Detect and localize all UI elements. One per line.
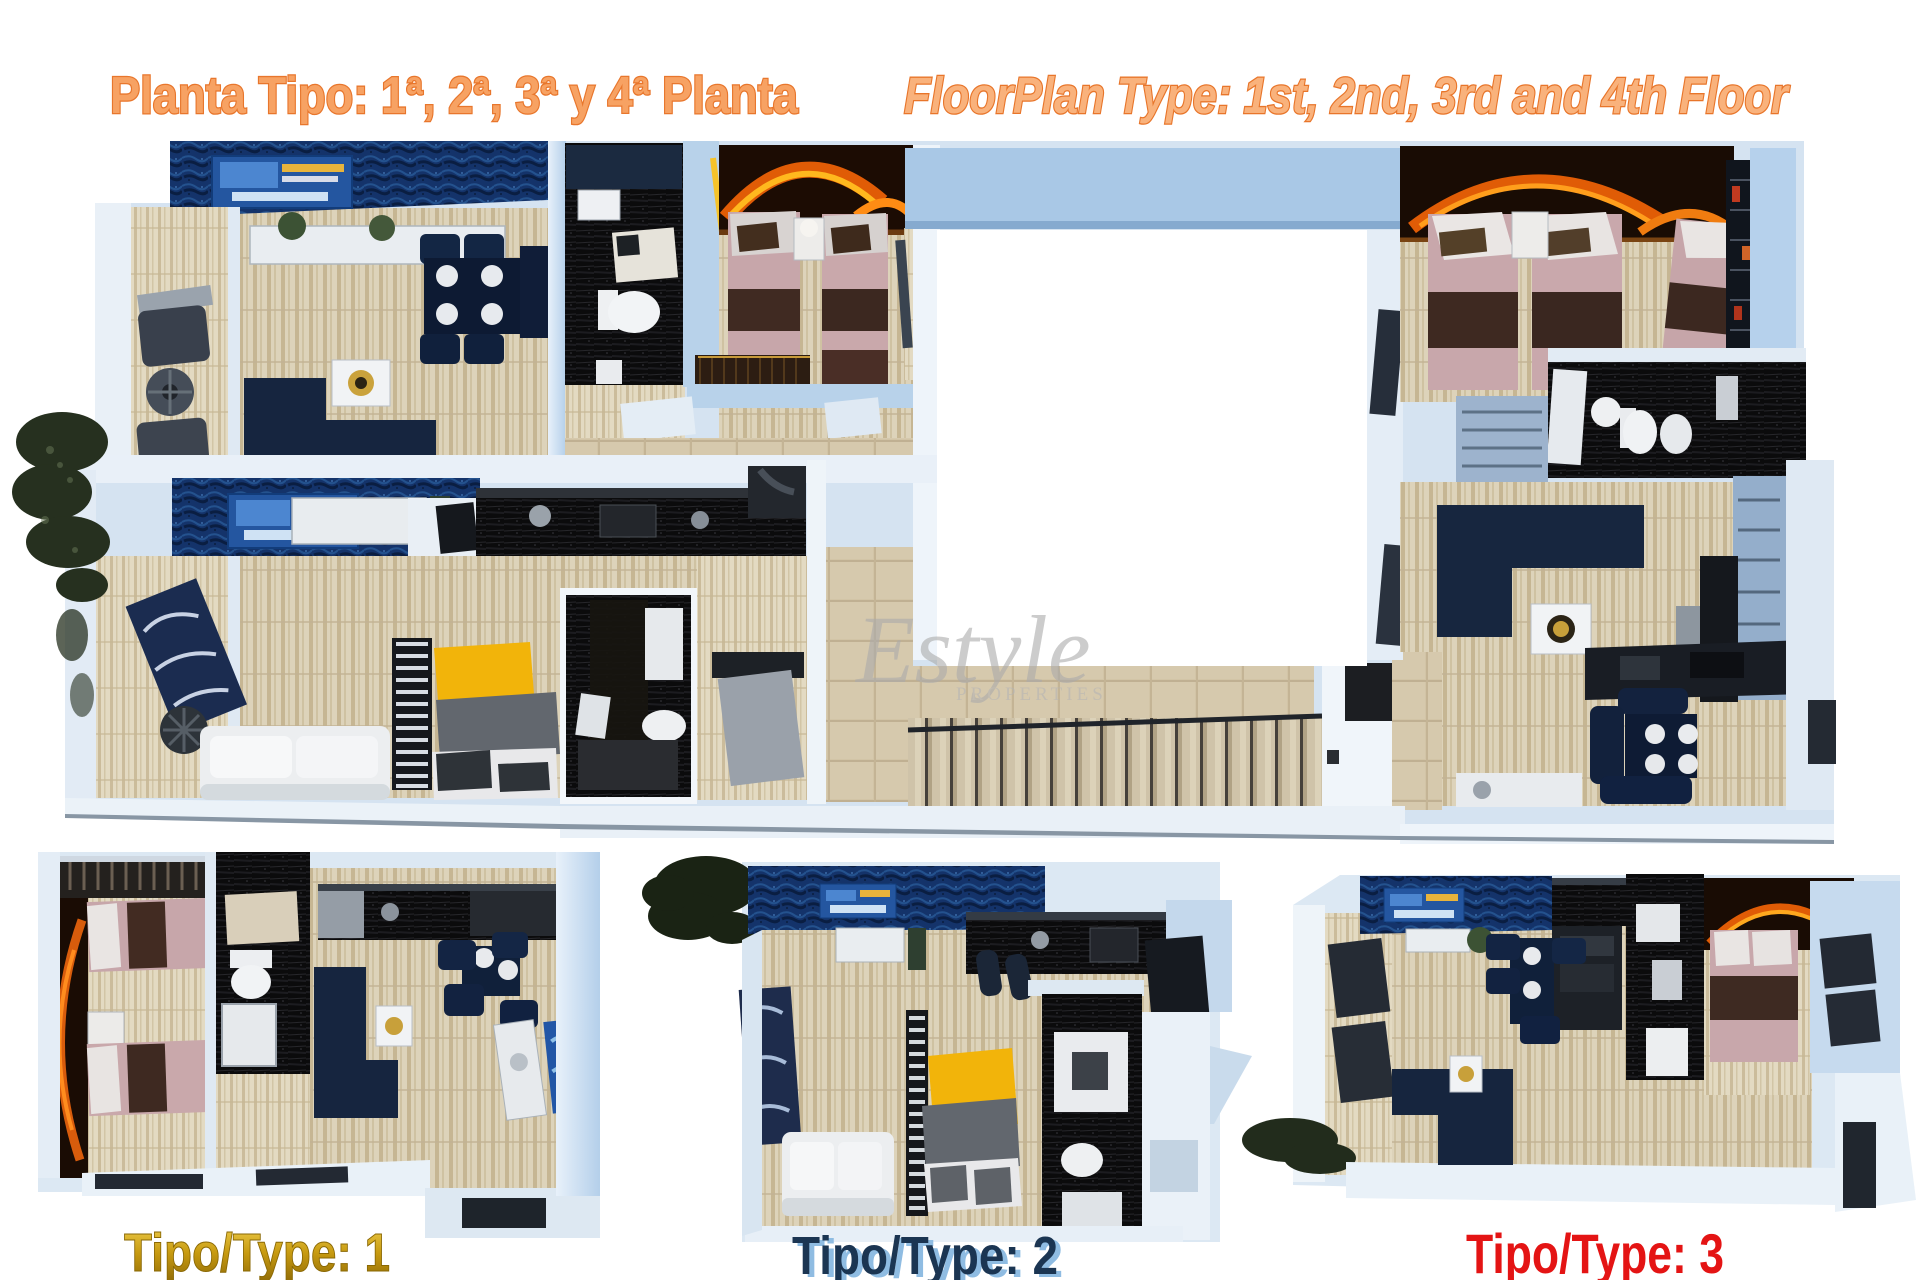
svg-text:Planta Tipo: 1ª, 2ª, 3ª y 4ª P: Planta Tipo: 1ª, 2ª, 3ª y 4ª Planta (110, 67, 799, 125)
svg-text:Tipo/Type: 2: Tipo/Type: 2 (792, 1226, 1058, 1280)
svg-text:Tipo/Type: 1: Tipo/Type: 1 (124, 1223, 390, 1280)
svg-text:PROPERTIES: PROPERTIES (956, 684, 1107, 705)
svg-text:Tipo/Type: 3: Tipo/Type: 3 (1466, 1222, 1724, 1280)
svg-text:FloorPlan Type: 1st, 2nd, 3rd: FloorPlan Type: 1st, 2nd, 3rd and 4th Fl… (904, 67, 1791, 124)
